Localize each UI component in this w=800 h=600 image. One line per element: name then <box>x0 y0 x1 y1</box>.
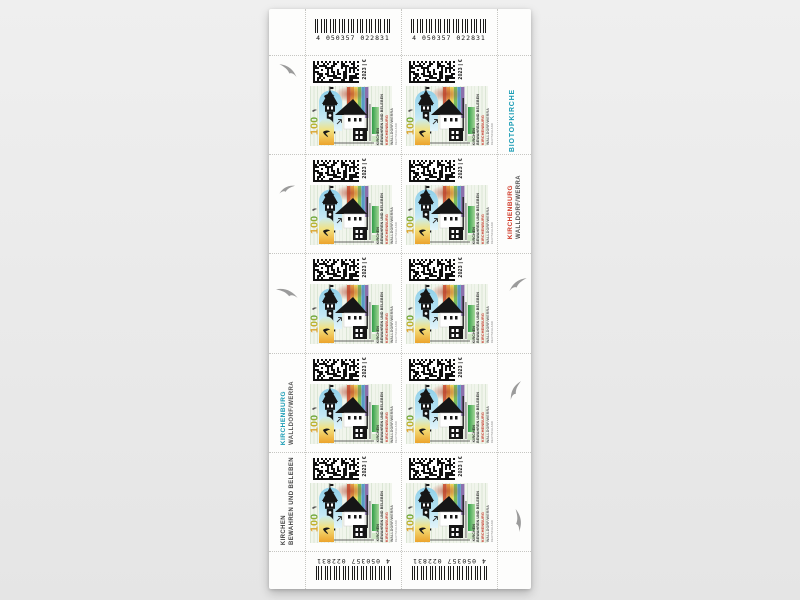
tower-belfry <box>325 403 335 410</box>
tower-belfry <box>421 204 431 211</box>
postage-stamp: 2023 | € <box>401 55 497 154</box>
year-currency-label: 2023 | € <box>458 59 464 79</box>
nave-wall <box>440 115 461 129</box>
postage-stamp: 2023 | € <box>305 452 401 551</box>
tower-belfry <box>421 304 431 311</box>
datamatrix-code <box>313 458 359 480</box>
perforation-line <box>269 551 531 552</box>
stamp-title-block: KIRCHEN BEWAHREN UND BELEBEN KIRCHENBURG… <box>472 87 494 145</box>
postage-stamp: 2023 | € <box>401 154 497 253</box>
stamp-title-line2: BEWAHREN UND BELEBEN <box>476 292 480 343</box>
stamp-sheet: 4 050357 022831 4 050357 022831 4 050357… <box>269 9 531 589</box>
small-bird-icon <box>312 407 317 409</box>
stamp-title-line3: KIRCHENBURG <box>481 412 485 442</box>
ean-barcode-bottom-left: 4 050357 022831 <box>311 557 395 580</box>
stamp-face-value: 100 <box>406 216 417 234</box>
tower-belfry <box>421 403 431 410</box>
barcode-bars <box>315 19 391 33</box>
nave-wall <box>344 313 365 327</box>
stamp-country-label: DEUTSCHLAND <box>491 321 494 343</box>
barcode-digits: 4 050357 022831 <box>407 557 491 565</box>
ean-barcode-top-right: 4 050357 022831 <box>407 19 491 42</box>
postage-stamp: 2023 | € <box>401 452 497 551</box>
nave-wall <box>440 512 461 526</box>
stamp-face-value: 100 <box>310 414 321 432</box>
stamp-country-label: DEUTSCHLAND <box>491 123 494 145</box>
stamp-title-block: KIRCHEN BEWAHREN UND BELEBEN KIRCHENBURG… <box>376 285 398 343</box>
datamatrix-code <box>409 160 455 182</box>
kirchenburg-label: KIRCHENBURG <box>507 185 515 239</box>
small-bird-icon <box>408 308 413 310</box>
year-currency-label: 2023 | € <box>458 257 464 277</box>
datamatrix-code <box>313 359 359 381</box>
perforation-line <box>497 9 498 589</box>
nave-wall <box>440 313 461 327</box>
house-base <box>353 426 367 439</box>
barcode-digits: 4 050357 022831 <box>311 557 395 565</box>
stamp-title-block: KIRCHEN BEWAHREN UND BELEBEN KIRCHENBURG… <box>376 484 398 542</box>
tower-belfry <box>421 502 431 509</box>
year-currency-label: 2023 | € <box>362 59 368 79</box>
nave-wall <box>344 214 365 228</box>
stamp-face-value: 100 <box>310 117 321 135</box>
stamp-title-line2: BEWAHREN UND BELEBEN <box>476 94 480 145</box>
left-margin-subtitle: KIRCHEN BEWAHREN UND BELEBEN <box>281 455 296 545</box>
year-currency-label: 2023 | € <box>458 456 464 476</box>
house-base <box>449 227 463 240</box>
postage-stamp: 2023 | € <box>305 253 401 352</box>
barcode-bars <box>411 19 487 33</box>
stamp-country-label: DEUTSCHLAND <box>395 421 398 443</box>
stamp-title-block: KIRCHEN BEWAHREN UND BELEBEN KIRCHENBURG… <box>376 87 398 145</box>
house-base <box>353 326 367 339</box>
nave-wall <box>440 413 461 427</box>
postage-stamp: 2023 | € <box>305 154 401 253</box>
walldorf-werra-label: WALLDORF/WERRA <box>289 381 296 445</box>
tower-belfry <box>421 105 431 112</box>
small-bird-icon <box>312 209 317 211</box>
small-bird-icon <box>312 109 317 111</box>
stamp-face-value: 100 <box>406 513 417 531</box>
stamp-face-value: 100 <box>406 414 417 432</box>
kirchenburg-label: KIRCHENBURG <box>280 391 288 445</box>
stamp-title-block: KIRCHEN BEWAHREN UND BELEBEN KIRCHENBURG… <box>472 285 494 343</box>
stamp-country-label: DEUTSCHLAND <box>395 222 398 244</box>
datamatrix-code <box>409 458 455 480</box>
house-base <box>353 227 367 240</box>
stamp-face-value: 100 <box>310 513 321 531</box>
tower-belfry <box>325 304 335 311</box>
bird-silhouette-icon <box>502 375 530 408</box>
datamatrix-code <box>409 61 455 83</box>
small-bird-icon <box>408 109 413 111</box>
small-bird-icon <box>408 506 413 508</box>
left-margin-title: KIRCHENBURG WALLDORF/WERRA <box>280 375 296 445</box>
house-base <box>449 128 463 141</box>
stamp-grid: 2023 | € <box>305 55 497 551</box>
stamp-title-line3: KIRCHENBURG <box>481 313 485 343</box>
stamp-title-line3: KIRCHENBURG <box>481 115 485 145</box>
biotopkirche-label: BIOTOPKIRCHE <box>509 89 516 152</box>
ean-barcode-bottom-right: 4 050357 022831 <box>407 557 491 580</box>
stamp-title-line2: BEWAHREN UND BELEBEN <box>476 491 480 542</box>
datamatrix-code <box>313 259 359 281</box>
datamatrix-code <box>313 61 359 83</box>
stamp-title-line2: BEWAHREN UND BELEBEN <box>380 193 384 244</box>
small-bird-icon <box>408 407 413 409</box>
year-currency-label: 2023 | € <box>362 257 368 277</box>
stamp-title-line3: KIRCHENBURG <box>385 214 389 244</box>
small-bird-icon <box>408 209 413 211</box>
barcode-digits: 4 050357 022831 <box>407 34 491 42</box>
postage-stamp: 2023 | € <box>305 353 401 452</box>
ean-barcode-top-left: 4 050357 022831 <box>311 19 395 42</box>
bird-silhouette-icon <box>500 504 533 537</box>
postage-stamp: 2023 | € <box>305 55 401 154</box>
stamp-title-line2: BEWAHREN UND BELEBEN <box>380 292 384 343</box>
barcode-digits: 4 050357 022831 <box>311 34 395 42</box>
stamp-country-label: DEUTSCHLAND <box>395 321 398 343</box>
year-currency-label: 2023 | € <box>362 456 368 476</box>
stamp-face-value: 100 <box>310 315 321 333</box>
stamp-title-line3: KIRCHENBURG <box>481 512 485 542</box>
nave-wall <box>440 214 461 228</box>
datamatrix-code <box>313 160 359 182</box>
stamp-title-line2: BEWAHREN UND BELEBEN <box>380 392 384 443</box>
bird-silhouette-icon <box>275 55 302 86</box>
nave-wall <box>344 512 365 526</box>
stamp-country-label: DEUTSCHLAND <box>395 520 398 542</box>
house-base <box>353 525 367 538</box>
small-bird-icon <box>312 506 317 508</box>
tower-belfry <box>325 105 335 112</box>
stamp-title-line3: KIRCHENBURG <box>385 115 389 145</box>
year-currency-label: 2023 | € <box>362 357 368 377</box>
bewahren-label: BEWAHREN UND BELEBEN <box>289 457 296 545</box>
stamp-title-block: KIRCHEN BEWAHREN UND BELEBEN KIRCHENBURG… <box>472 484 494 542</box>
stamp-face-value: 100 <box>406 315 417 333</box>
tower-belfry <box>325 204 335 211</box>
stamp-title-block: KIRCHEN BEWAHREN UND BELEBEN KIRCHENBURG… <box>376 186 398 244</box>
postage-stamp: 2023 | € <box>401 253 497 352</box>
house-base <box>449 525 463 538</box>
stamp-title-line2: BEWAHREN UND BELEBEN <box>476 193 480 244</box>
house-base <box>449 326 463 339</box>
postage-stamp: 2023 | € <box>401 353 497 452</box>
barcode-bars <box>411 566 487 580</box>
nave-wall <box>344 115 365 129</box>
house-base <box>353 128 367 141</box>
stamp-title-line3: KIRCHENBURG <box>385 313 389 343</box>
stamp-country-label: DEUTSCHLAND <box>491 222 494 244</box>
stamp-title-line3: KIRCHENBURG <box>481 214 485 244</box>
year-currency-label: 2023 | € <box>458 158 464 178</box>
datamatrix-code <box>409 359 455 381</box>
nave-wall <box>344 413 365 427</box>
stamp-country-label: DEUTSCHLAND <box>395 123 398 145</box>
stamp-title-block: KIRCHEN BEWAHREN UND BELEBEN KIRCHENBURG… <box>472 385 494 443</box>
barcode-bars <box>315 566 391 580</box>
bird-silhouette-icon <box>505 269 532 300</box>
walldorf-werra-label: WALLDORF/WERRA <box>516 175 523 239</box>
stamp-title-line3: KIRCHENBURG <box>385 412 389 442</box>
stamp-title-line3: KIRCHENBURG <box>385 512 389 542</box>
kirchen-label: KIRCHEN <box>281 515 288 545</box>
year-currency-label: 2023 | € <box>362 158 368 178</box>
stamp-title-line2: BEWAHREN UND BELEBEN <box>476 392 480 443</box>
tower-belfry <box>325 502 335 509</box>
bird-silhouette-icon <box>275 177 299 204</box>
stamp-face-value: 100 <box>310 216 321 234</box>
datamatrix-code <box>409 259 455 281</box>
stamp-country-label: DEUTSCHLAND <box>491 520 494 542</box>
stamp-title-line2: BEWAHREN UND BELEBEN <box>380 491 384 542</box>
house-base <box>449 426 463 439</box>
stamp-title-line2: BEWAHREN UND BELEBEN <box>380 94 384 145</box>
stamp-country-label: DEUTSCHLAND <box>491 421 494 443</box>
bird-silhouette-icon <box>271 277 304 311</box>
small-bird-icon <box>312 308 317 310</box>
stamp-face-value: 100 <box>406 117 417 135</box>
year-currency-label: 2023 | € <box>458 357 464 377</box>
right-margin-title: KIRCHENBURG WALLDORF/WERRA <box>507 169 523 239</box>
stamp-title-block: KIRCHEN BEWAHREN UND BELEBEN KIRCHENBURG… <box>376 385 398 443</box>
stamp-title-block: KIRCHEN BEWAHREN UND BELEBEN KIRCHENBURG… <box>472 186 494 244</box>
